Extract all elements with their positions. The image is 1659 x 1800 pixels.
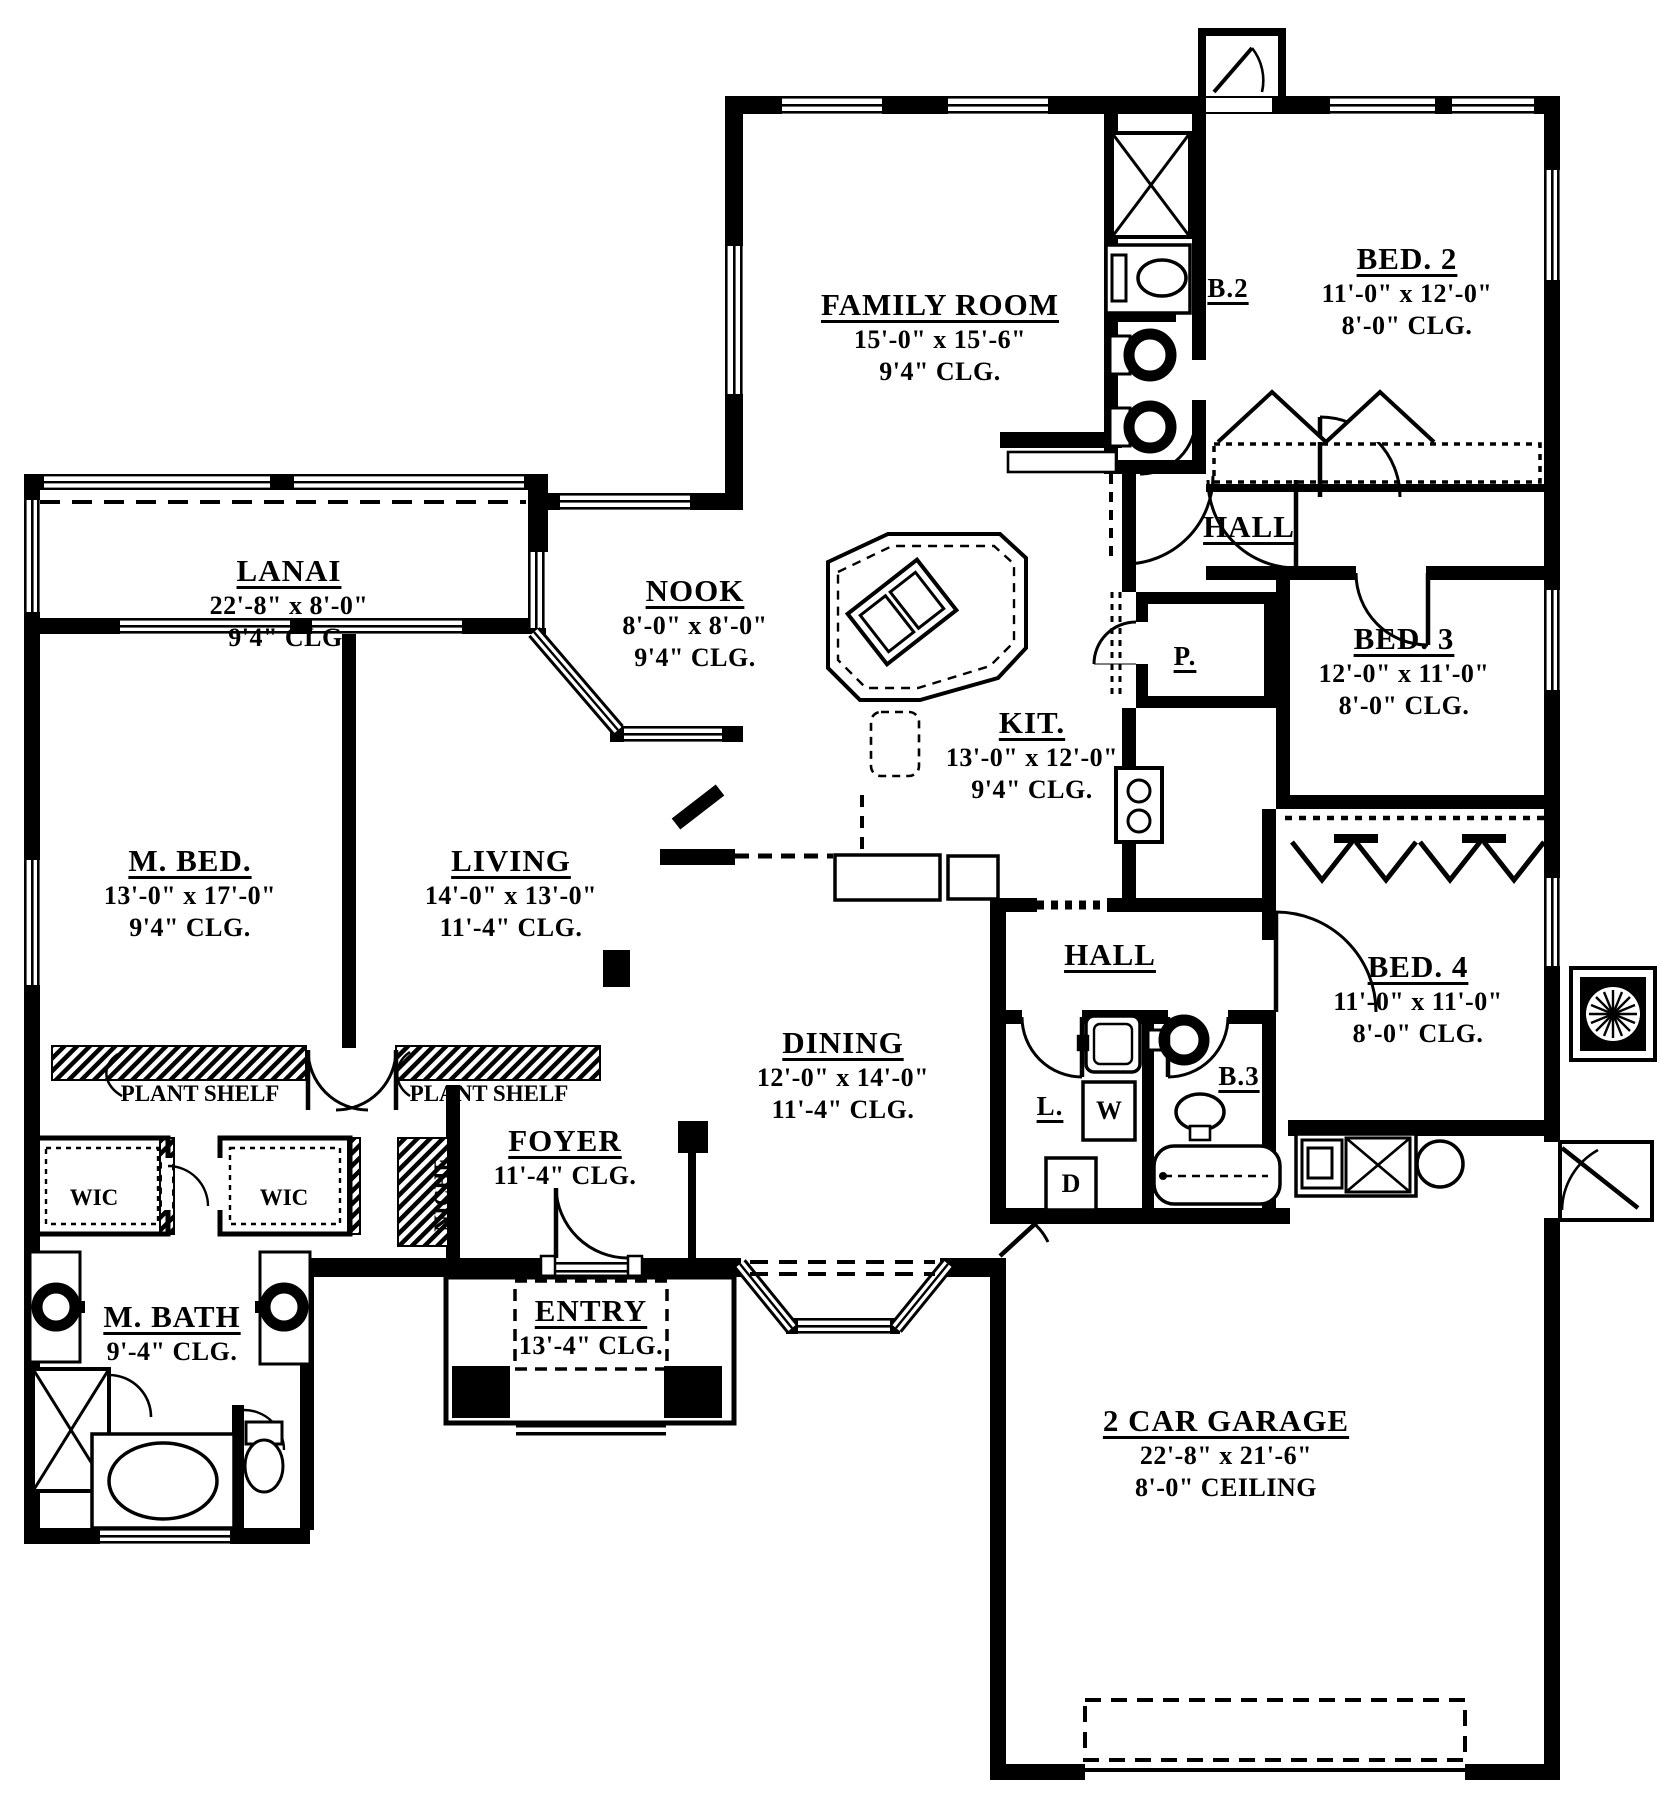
- bathtub-icon: [92, 1434, 234, 1528]
- room-label-hall-lower: HALL: [1064, 936, 1156, 974]
- toilet-icon: [1148, 1020, 1204, 1060]
- window: [782, 96, 882, 114]
- window: [1452, 96, 1534, 114]
- vanity-sink-icon: [1106, 245, 1190, 313]
- porch-column: [452, 1366, 510, 1418]
- room-label-bed2: BED. 2 11'-0" x 12'-0" 8'-0" CLG.: [1322, 240, 1493, 341]
- window: [24, 500, 40, 612]
- side-door: [1560, 1142, 1652, 1220]
- range-icon: [1116, 768, 1162, 842]
- water-heater-icon: [1417, 1141, 1463, 1187]
- label-niche: NICHE: [429, 1156, 457, 1231]
- label-wic-right: WIC: [260, 1184, 309, 1212]
- window: [1330, 96, 1435, 114]
- room-label-kitchen: KIT. 13'-0" x 12'-0" 9'4" CLG.: [946, 704, 1118, 805]
- room-label-garage: 2 CAR GARAGE 22'-8" x 21'-6" 8'-0" CEILI…: [1103, 1402, 1349, 1503]
- room-label-lanai: LANAI 22'-8" x 8'-0" 9'4" CLG.: [210, 552, 369, 653]
- closet-hanger-symbols: [1292, 834, 1544, 880]
- room-label-family: FAMILY ROOM 15'-0" x 15'-6" 9'4" CLG.: [821, 286, 1059, 387]
- label-dryer: D: [1062, 1168, 1081, 1200]
- nook-diagonal-window: [534, 632, 618, 730]
- label-plant-shelf-left: PLANT SHELF: [121, 1080, 280, 1108]
- window: [948, 96, 1048, 114]
- dishwasher-dashed: [871, 712, 919, 776]
- porch-column: [664, 1366, 722, 1418]
- bathtub-icon: [1154, 1146, 1280, 1204]
- room-label-bed4: BED. 4 11'-0" x 11'-0" 8'-0" CLG.: [1333, 948, 1502, 1049]
- bath3-fixtures: [1148, 1020, 1280, 1204]
- laundry-sink-icon: [1078, 1016, 1140, 1072]
- room-label-bath3: B.3: [1218, 1060, 1259, 1093]
- window: [622, 726, 726, 742]
- room-label-foyer: FOYER 11'-4" CLG.: [494, 1122, 637, 1192]
- utility-area: [1296, 1134, 1463, 1196]
- floor-plan-page: FAMILY ROOM 15'-0" x 15'-6" 9'4" CLG. LA…: [0, 0, 1659, 1800]
- room-ceiling: 9'4" CLG.: [821, 356, 1059, 388]
- room-label-mbed: M. BED. 13'-0" x 17'-0" 9'4" CLG.: [104, 842, 276, 943]
- diagonal-walls: [676, 790, 720, 824]
- window: [1544, 878, 1560, 966]
- room-name: FAMILY ROOM: [821, 286, 1059, 324]
- room-label-hall-upper: HALL: [1203, 508, 1295, 546]
- window: [560, 493, 690, 510]
- room-label-dining: DINING 12'-0" x 14'-0" 11'-4" CLG.: [757, 1024, 929, 1125]
- window: [100, 1528, 230, 1544]
- window: [1544, 170, 1560, 280]
- room-label-laundry: L.: [1037, 1090, 1064, 1123]
- toilet-icon: [1110, 334, 1171, 376]
- label-washer: W: [1096, 1095, 1122, 1127]
- room-label-entry: ENTRY 13'-4" CLG.: [519, 1292, 663, 1362]
- shower-icon: [1112, 133, 1190, 237]
- window: [1544, 590, 1560, 690]
- utility-sink-icon: [1346, 1138, 1410, 1192]
- front-door: [541, 1188, 642, 1278]
- ac-unit-icon: [1571, 968, 1655, 1060]
- toilet-icon: [1110, 406, 1171, 448]
- room-label-mbath: M. BATH 9'-4" CLG.: [103, 1298, 240, 1368]
- bath2-fixtures: [1106, 133, 1190, 448]
- room-label-pantry: P.: [1174, 640, 1197, 673]
- window: [528, 552, 546, 628]
- label-plant-shelf-right: PLANT SHELF: [410, 1080, 569, 1108]
- window: [725, 246, 743, 394]
- window: [798, 1318, 890, 1334]
- room-label-bed3: BED. 3 12'-0" x 11'-0" 8'-0" CLG.: [1319, 620, 1490, 721]
- room-label-nook: NOOK 8'-0" x 8'-0" 9'4" CLG.: [622, 572, 767, 673]
- room-label-living: LIVING 14'-0" x 13'-0" 11'-4" CLG.: [425, 842, 597, 943]
- kitchen-counter: [1008, 452, 1116, 472]
- bump-opening: [1206, 98, 1272, 112]
- window: [24, 860, 40, 985]
- toilet-icon: [245, 1422, 283, 1492]
- label-wic-left: WIC: [70, 1184, 119, 1212]
- room-dims: 15'-0" x 15'-6": [821, 324, 1059, 356]
- mbath-fixtures: [30, 1252, 310, 1528]
- room-label-bath2: B.2: [1207, 272, 1248, 305]
- pedestal-sink-icon: [1176, 1094, 1224, 1140]
- buffet-counters: [835, 855, 998, 900]
